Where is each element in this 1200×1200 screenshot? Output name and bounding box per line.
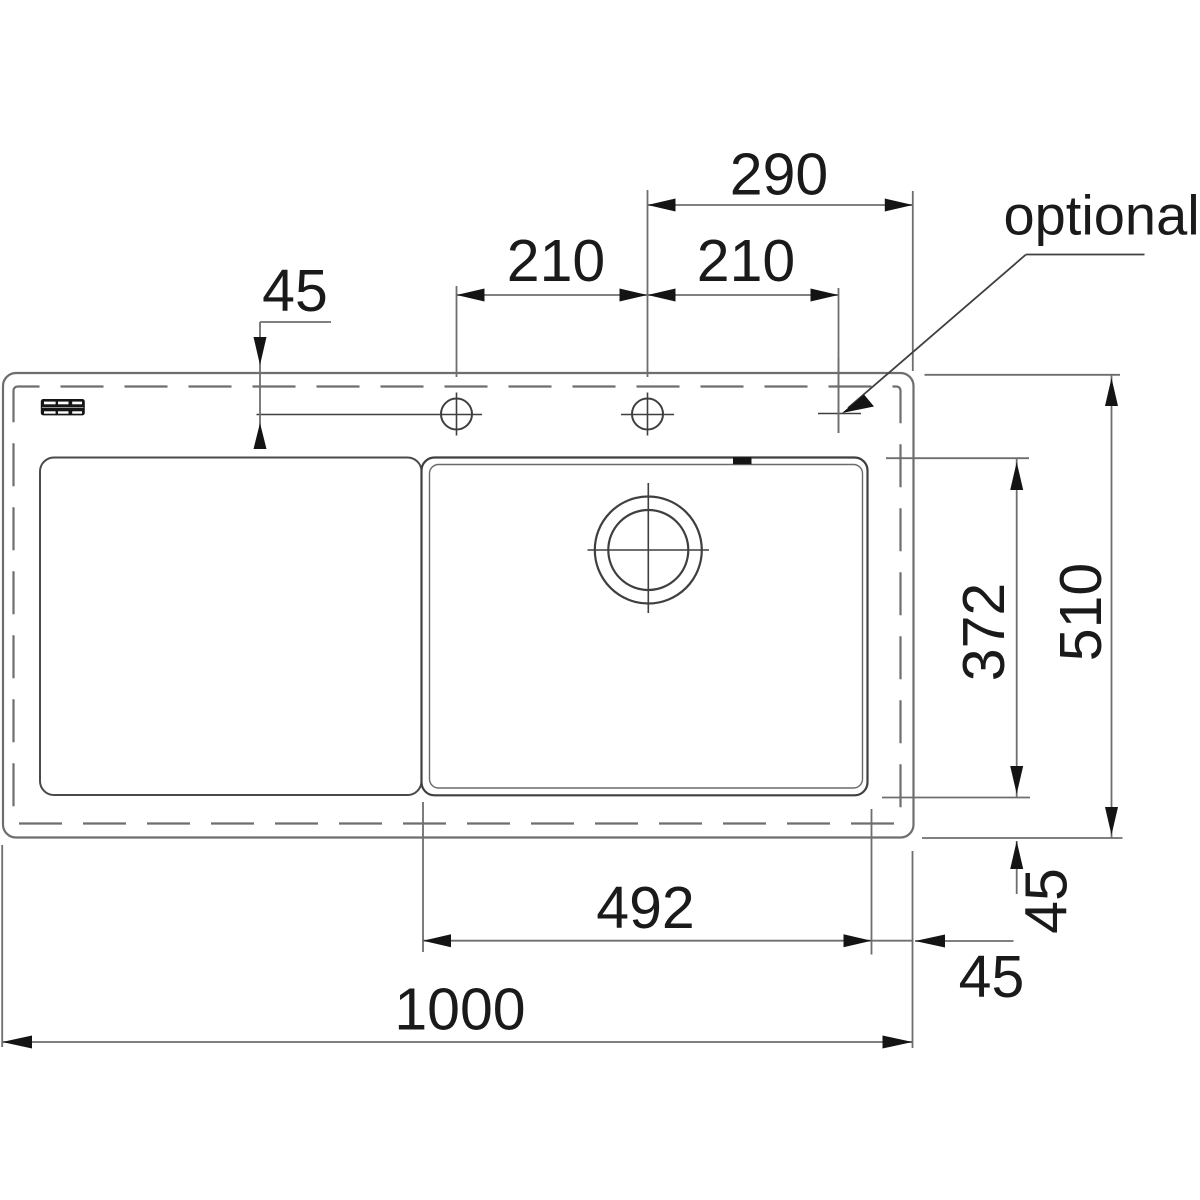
svg-text:372: 372 [951, 583, 1017, 681]
svg-text:45: 45 [1014, 868, 1080, 934]
svg-text:1000: 1000 [394, 977, 525, 1043]
svg-text:510: 510 [1048, 563, 1114, 661]
svg-text:optional: optional [1004, 184, 1200, 247]
svg-text:290: 290 [730, 142, 828, 208]
svg-text:45: 45 [959, 944, 1025, 1010]
svg-text:210: 210 [507, 228, 605, 294]
svg-text:210: 210 [697, 228, 795, 294]
svg-text:45: 45 [262, 258, 328, 324]
svg-text:492: 492 [596, 875, 694, 941]
